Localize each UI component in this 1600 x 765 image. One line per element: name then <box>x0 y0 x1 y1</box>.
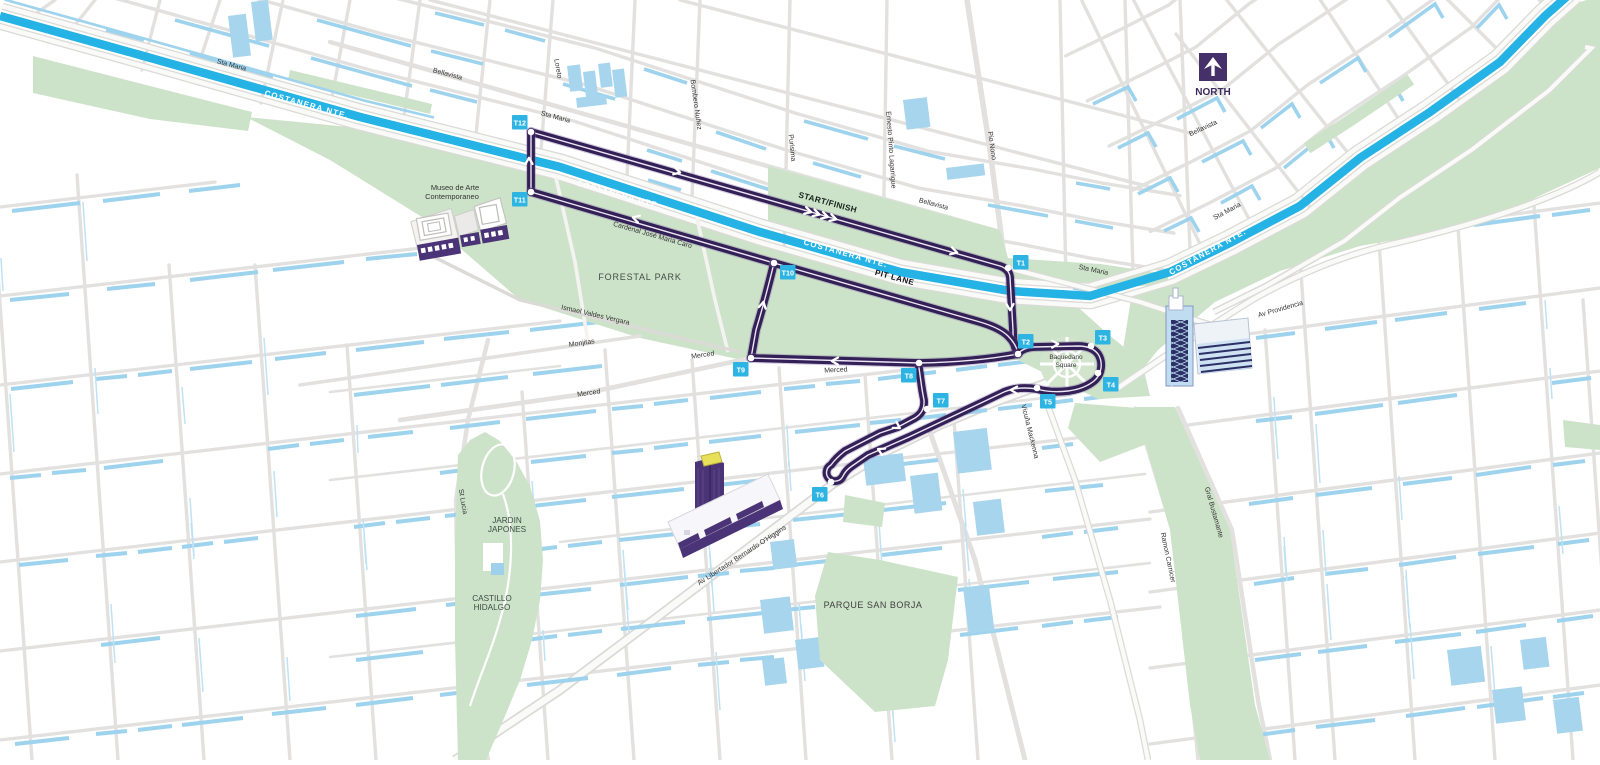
svg-text:NORTH: NORTH <box>1195 87 1231 98</box>
svg-text:T11: T11 <box>514 196 526 205</box>
svg-text:T3: T3 <box>1099 334 1107 343</box>
svg-text:JAPONES: JAPONES <box>488 525 527 534</box>
svg-text:HIDALGO: HIDALGO <box>474 603 511 612</box>
svg-text:T4: T4 <box>1107 381 1115 390</box>
svg-text:Merced: Merced <box>824 366 848 374</box>
svg-text:Baquedano: Baquedano <box>1049 354 1083 361</box>
svg-text:Museo de Arte: Museo de Arte <box>431 183 479 192</box>
svg-text:T7: T7 <box>937 397 945 406</box>
svg-text:T6: T6 <box>816 491 824 500</box>
svg-text:T5: T5 <box>1044 398 1052 407</box>
svg-text:Contemporaneo: Contemporaneo <box>425 192 479 201</box>
svg-text:T1: T1 <box>1017 259 1025 268</box>
svg-text:CASTILLO: CASTILLO <box>472 594 512 603</box>
svg-text:T8: T8 <box>905 372 913 381</box>
svg-text:Square: Square <box>1056 362 1077 369</box>
svg-text:T10: T10 <box>782 269 794 278</box>
svg-text:T2: T2 <box>1022 338 1030 347</box>
svg-text:PARQUE SAN BORJA: PARQUE SAN BORJA <box>824 600 923 610</box>
svg-text:FORESTAL PARK: FORESTAL PARK <box>598 272 681 282</box>
svg-text:T9: T9 <box>737 366 745 375</box>
svg-text:JARDIN: JARDIN <box>492 516 522 525</box>
svg-text:T12: T12 <box>514 119 526 128</box>
